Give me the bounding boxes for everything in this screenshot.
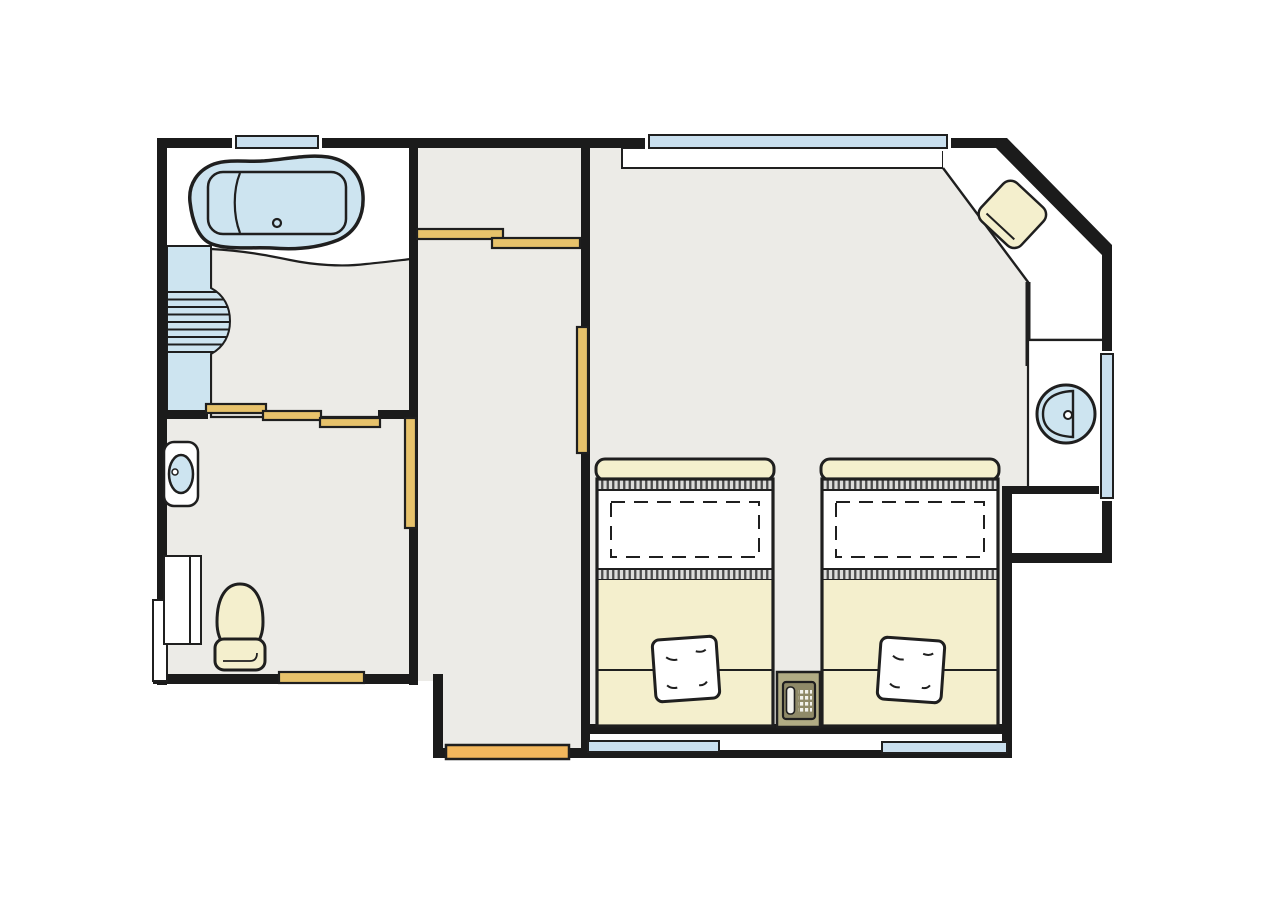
corridor-sliding-door-panel bbox=[417, 229, 503, 239]
pillow-body bbox=[877, 637, 945, 703]
telephone bbox=[783, 682, 815, 719]
bottom-window-left bbox=[588, 741, 719, 752]
bed-blanket-band bbox=[822, 479, 998, 490]
vanity-sink bbox=[1037, 385, 1095, 443]
twin-bed-right bbox=[821, 459, 999, 726]
wall-closet-top bbox=[1002, 486, 1106, 494]
bedroom-pocket-door bbox=[577, 327, 588, 453]
telephone-handset bbox=[787, 687, 795, 714]
toilet-pocket-door bbox=[405, 418, 416, 528]
hand-basin bbox=[164, 442, 198, 506]
bed-footboard bbox=[596, 459, 774, 480]
wall-vestibule-left bbox=[433, 674, 443, 758]
bed-blanket-band bbox=[822, 569, 998, 580]
wall-closet-bottom bbox=[1004, 553, 1112, 563]
closet bbox=[1010, 492, 1104, 555]
nightstand bbox=[777, 672, 820, 727]
bathroom-sliding-door-panel bbox=[320, 418, 380, 427]
twin-bed-left bbox=[596, 459, 774, 726]
bed-blanket-band bbox=[597, 479, 773, 490]
pillow-right bbox=[877, 637, 945, 703]
bathroom-window bbox=[236, 136, 318, 148]
bottom-window-right bbox=[882, 742, 1007, 753]
vanity-sink-drain bbox=[1064, 411, 1072, 419]
floor-plan-page bbox=[0, 0, 1279, 905]
pillow-body bbox=[652, 636, 720, 702]
wall-divider-left bbox=[157, 410, 208, 419]
toilet-rear-door bbox=[279, 672, 364, 683]
wall-top-a bbox=[157, 138, 236, 148]
corridor-sliding-door-panel bbox=[492, 238, 580, 248]
hand-basin-faucet bbox=[172, 469, 178, 475]
wall-right-lower bbox=[1102, 495, 1112, 558]
bed-footboard bbox=[821, 459, 999, 480]
pillow-left bbox=[652, 636, 720, 702]
floor-plan-image bbox=[0, 0, 1279, 905]
entrance-door bbox=[446, 745, 569, 759]
bathroom-floor bbox=[211, 249, 411, 417]
wall-bedroom-right bbox=[1002, 486, 1012, 758]
right-wall-window bbox=[1101, 354, 1113, 498]
wall-top-b bbox=[318, 138, 649, 148]
bed-blanket-band bbox=[597, 569, 773, 580]
telephone-keypad bbox=[798, 689, 812, 712]
wall-top-c bbox=[946, 138, 1004, 148]
bathroom-sliding-door-panel bbox=[206, 404, 266, 413]
wall-right-upper bbox=[1102, 245, 1112, 357]
toilet bbox=[215, 584, 265, 670]
cabinet-body bbox=[164, 556, 201, 644]
bedroom-top-window bbox=[649, 135, 947, 148]
bathtub bbox=[190, 156, 363, 249]
bathroom-sliding-door-panel bbox=[263, 411, 321, 420]
plan-root bbox=[153, 132, 1114, 759]
